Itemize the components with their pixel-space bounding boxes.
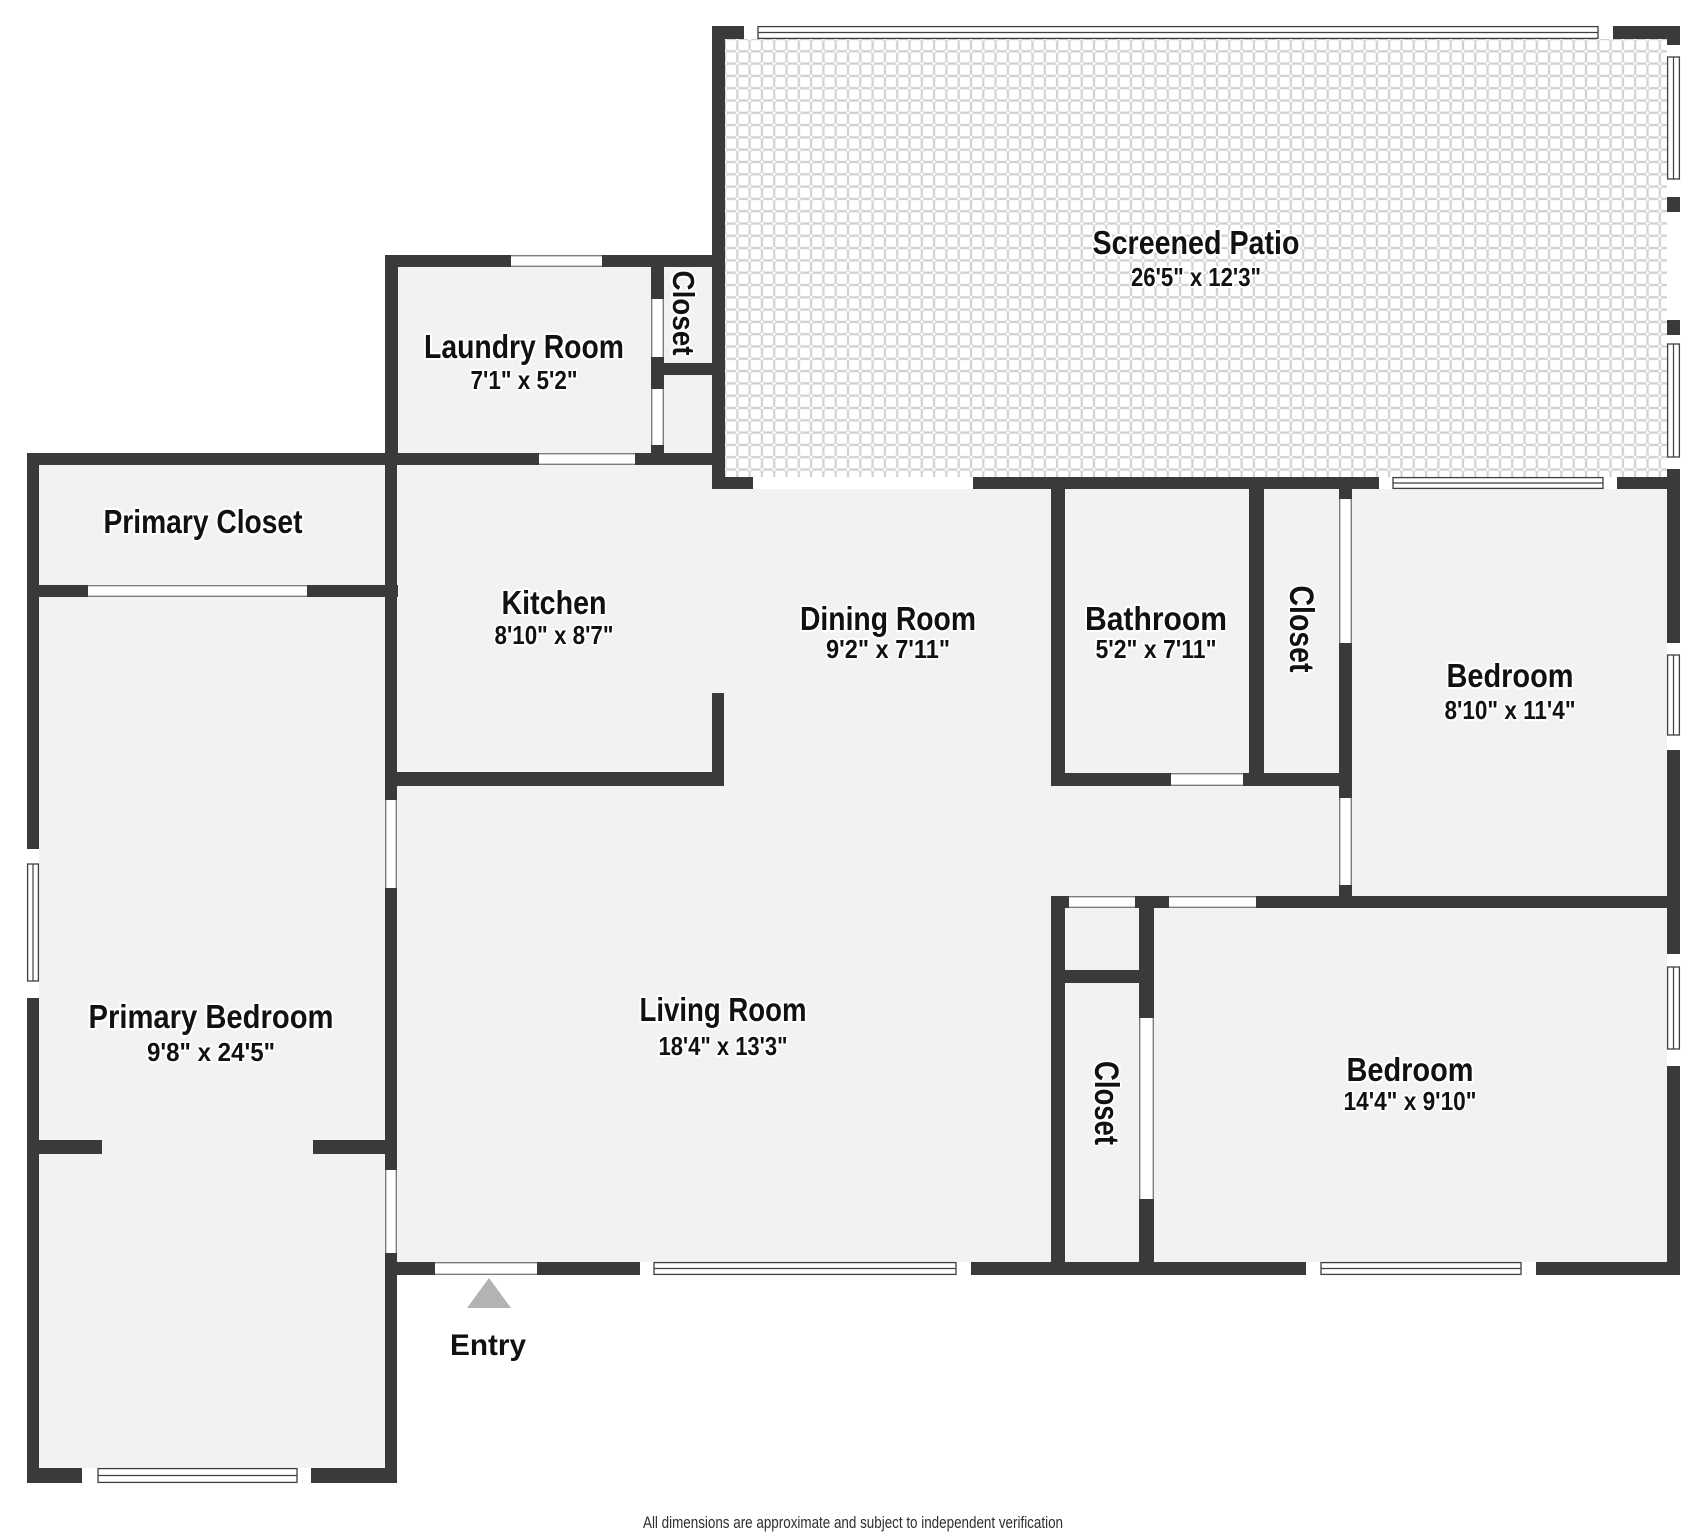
svg-text:8'10" x 8'7": 8'10" x 8'7" [495,620,614,650]
svg-text:9'8" x 24'5": 9'8" x 24'5" [147,1037,275,1067]
svg-text:Kitchen: Kitchen [502,584,607,621]
svg-text:18'4" x 13'3": 18'4" x 13'3" [659,1031,788,1061]
svg-text:All dimensions are approximate: All dimensions are approximate and subje… [643,1513,1063,1532]
svg-text:Closet: Closet [1087,1061,1125,1145]
svg-text:Screened Patio: Screened Patio [1093,224,1300,261]
svg-text:9'2" x 7'11": 9'2" x 7'11" [826,634,950,664]
svg-text:Bedroom: Bedroom [1347,1051,1474,1088]
svg-text:Closet: Closet [1282,586,1320,673]
svg-text:Entry: Entry [450,1329,526,1362]
svg-text:26'5" x 12'3": 26'5" x 12'3" [1131,262,1261,292]
svg-text:Laundry Room: Laundry Room [424,328,624,365]
svg-text:14'4" x 9'10": 14'4" x 9'10" [1344,1086,1477,1116]
svg-text:Closet: Closet [666,271,701,356]
svg-text:Primary Bedroom: Primary Bedroom [89,998,334,1035]
svg-text:Primary Closet: Primary Closet [104,503,303,540]
svg-text:7'1" x 5'2": 7'1" x 5'2" [471,365,578,395]
svg-text:Bedroom: Bedroom [1447,657,1574,694]
svg-text:Living Room: Living Room [640,991,807,1028]
svg-text:Dining Room: Dining Room [800,600,976,637]
svg-text:8'10" x 11'4": 8'10" x 11'4" [1445,695,1576,725]
svg-text:Bathroom: Bathroom [1085,600,1227,637]
svg-text:5'2" x 7'11": 5'2" x 7'11" [1096,634,1217,664]
